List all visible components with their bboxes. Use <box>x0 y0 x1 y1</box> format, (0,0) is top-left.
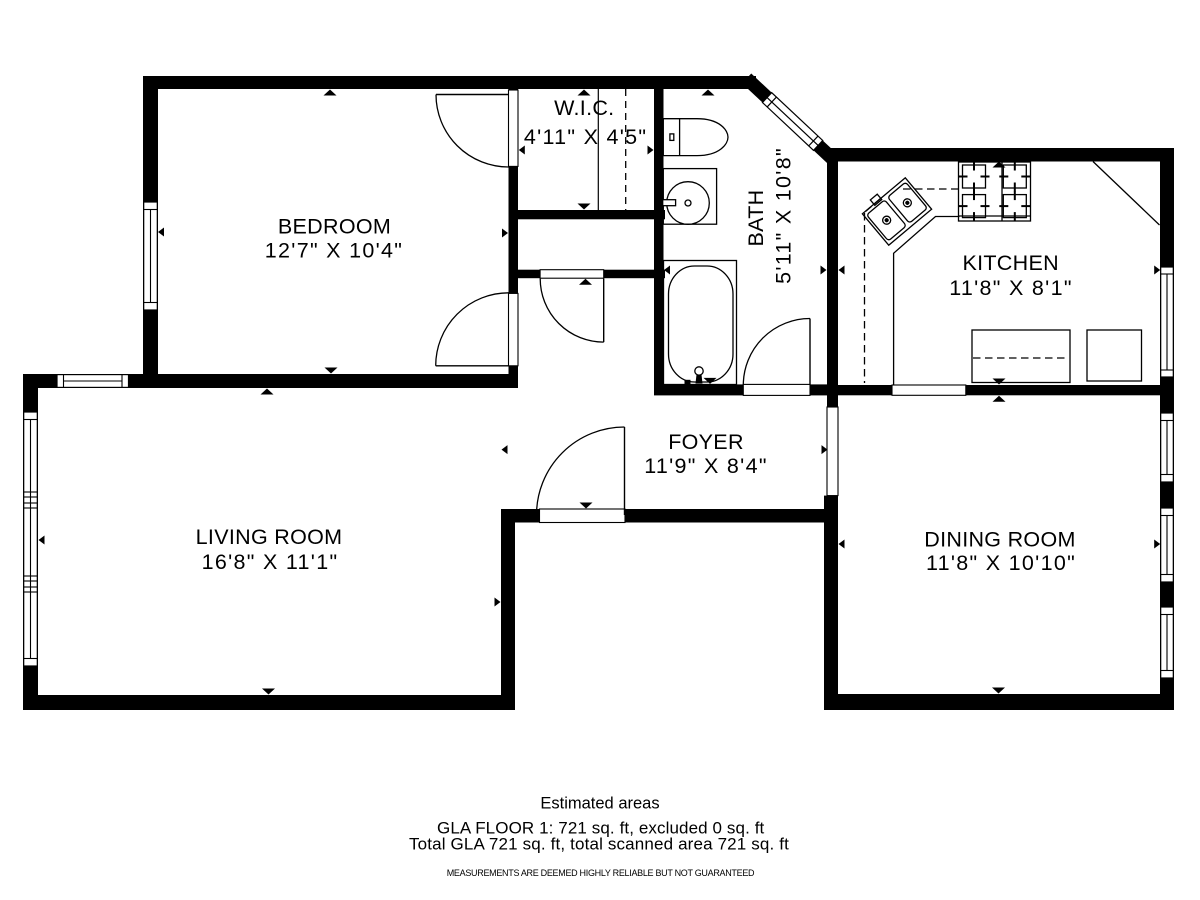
svg-text:DINING ROOM: DINING ROOM <box>924 528 1075 552</box>
svg-text:MEASUREMENTS ARE DEEMED HIGHLY: MEASUREMENTS ARE DEEMED HIGHLY RELIABLE … <box>447 868 755 878</box>
svg-text:W.I.C.: W.I.C. <box>554 96 614 120</box>
svg-text:KITCHEN: KITCHEN <box>962 251 1058 275</box>
svg-text:12'7" X 10'4": 12'7" X 10'4" <box>265 239 403 263</box>
svg-text:LIVING ROOM: LIVING ROOM <box>196 525 343 549</box>
svg-text:4'11" X 4'5": 4'11" X 4'5" <box>524 125 648 149</box>
svg-text:Estimated areas: Estimated areas <box>540 795 659 813</box>
svg-text:11'9" X 8'4": 11'9" X 8'4" <box>644 454 768 478</box>
svg-text:BEDROOM: BEDROOM <box>278 215 391 239</box>
svg-text:Total GLA 721 sq. ft, total sc: Total GLA 721 sq. ft, total scanned area… <box>409 835 789 854</box>
svg-text:FOYER: FOYER <box>668 430 744 454</box>
svg-text:BATH: BATH <box>744 190 768 247</box>
svg-text:11'8" X 10'10": 11'8" X 10'10" <box>926 551 1076 575</box>
svg-text:11'8" X 8'1": 11'8" X 8'1" <box>949 276 1073 300</box>
svg-text:16'8" X 11'1": 16'8" X 11'1" <box>202 550 339 574</box>
svg-text:5'11" X 10'8": 5'11" X 10'8" <box>772 147 796 284</box>
